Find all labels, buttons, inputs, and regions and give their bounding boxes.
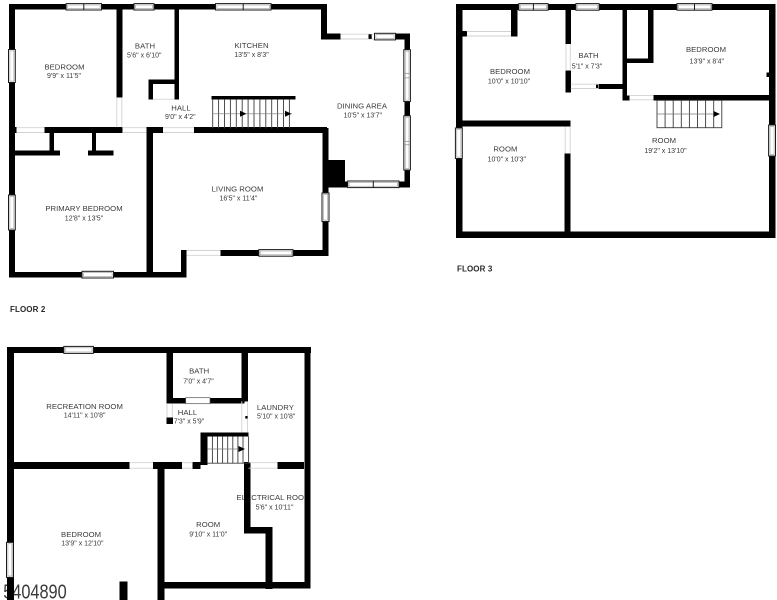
svg-text:BATH: BATH bbox=[189, 366, 209, 375]
svg-text:BEDROOM: BEDROOM bbox=[490, 67, 530, 76]
svg-text:BATH: BATH bbox=[135, 41, 155, 50]
svg-text:PRIMARY BEDROOM: PRIMARY BEDROOM bbox=[45, 204, 122, 213]
svg-text:19'2" x 13'10": 19'2" x 13'10" bbox=[644, 148, 687, 155]
svg-text:16'5" x 11'4": 16'5" x 11'4" bbox=[219, 195, 257, 202]
svg-text:HALL: HALL bbox=[171, 103, 191, 112]
svg-text:9'10" x 11'0": 9'10" x 11'0" bbox=[189, 532, 227, 539]
svg-text:5'1" x 7'3": 5'1" x 7'3" bbox=[572, 64, 603, 71]
svg-text:ROOM: ROOM bbox=[652, 136, 676, 145]
svg-text:13'9" x 12'10": 13'9" x 12'10" bbox=[61, 540, 104, 547]
svg-text:5'6" x 6'10": 5'6" x 6'10" bbox=[127, 53, 162, 60]
svg-text:7'3" x 5'9": 7'3" x 5'9" bbox=[174, 418, 205, 425]
svg-text:ROOM: ROOM bbox=[493, 144, 517, 153]
svg-text:13'9" x 8'4": 13'9" x 8'4" bbox=[690, 58, 725, 65]
svg-text:10'0" x 10'3": 10'0" x 10'3" bbox=[488, 156, 527, 163]
svg-text:RECREATION ROOM: RECREATION ROOM bbox=[46, 402, 123, 411]
svg-text:BEDROOM: BEDROOM bbox=[44, 62, 84, 71]
svg-text:BEDROOM: BEDROOM bbox=[61, 530, 101, 539]
svg-text:HALL: HALL bbox=[178, 408, 198, 417]
svg-text:BATH: BATH bbox=[578, 51, 598, 60]
svg-text:10'5" x 13'7": 10'5" x 13'7" bbox=[344, 113, 383, 120]
svg-text:DINING AREA: DINING AREA bbox=[337, 101, 388, 110]
svg-text:5'10" x 10'8": 5'10" x 10'8" bbox=[257, 414, 296, 421]
svg-text:13'5" x 8'3": 13'5" x 8'3" bbox=[234, 52, 269, 59]
svg-text:9'0" x 4'2": 9'0" x 4'2" bbox=[165, 114, 196, 121]
svg-text:9'9" x 11'5": 9'9" x 11'5" bbox=[47, 73, 81, 80]
svg-text:14'11" x 10'8": 14'11" x 10'8" bbox=[64, 412, 106, 419]
svg-text:LAUNDRY: LAUNDRY bbox=[257, 403, 294, 412]
svg-text:LIVING ROOM: LIVING ROOM bbox=[212, 184, 264, 193]
svg-text:FLOOR 2: FLOOR 2 bbox=[10, 305, 46, 314]
svg-text:10'0" x 10'10": 10'0" x 10'10" bbox=[488, 78, 531, 85]
svg-text:FLOOR 3: FLOOR 3 bbox=[457, 265, 493, 274]
svg-text:5'6" x 10'11": 5'6" x 10'11" bbox=[256, 505, 294, 512]
svg-text:12'8" x 13'5": 12'8" x 13'5" bbox=[65, 216, 104, 223]
svg-text:BEDROOM: BEDROOM bbox=[686, 45, 726, 54]
svg-text:ROOM: ROOM bbox=[196, 520, 220, 529]
svg-text:7'0" x 4'7": 7'0" x 4'7" bbox=[183, 379, 214, 386]
svg-text:KITCHEN: KITCHEN bbox=[234, 41, 268, 50]
